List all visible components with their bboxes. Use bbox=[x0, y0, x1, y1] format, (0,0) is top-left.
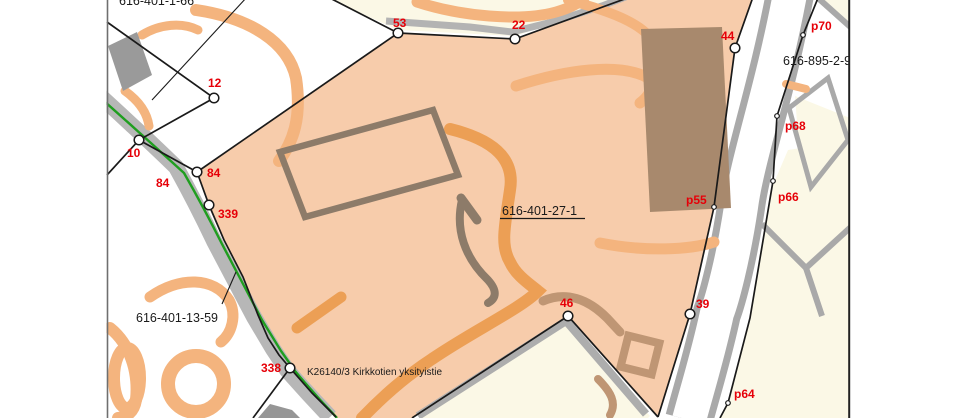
boundary-point-marker-small[interactable] bbox=[771, 179, 776, 184]
road-name-label: K26140/3 Kirkkotien yksityistie bbox=[307, 367, 443, 378]
point-label: p66 bbox=[778, 190, 799, 204]
point-label: p64 bbox=[734, 387, 755, 401]
cadastral-map-canvas: 53 22 44 12 10 84 84 339 338 46 39 p70 p… bbox=[0, 0, 960, 418]
point-label: 84 bbox=[207, 166, 221, 180]
contour-line bbox=[142, 25, 198, 35]
boundary-point-marker-small[interactable] bbox=[726, 401, 731, 406]
point-label: 10 bbox=[127, 146, 141, 160]
boundary-point-marker[interactable] bbox=[209, 93, 219, 103]
contour-ring bbox=[168, 356, 224, 412]
boundary-point-marker[interactable] bbox=[192, 167, 202, 177]
boundary-point-marker[interactable] bbox=[685, 309, 695, 319]
contour-line bbox=[786, 84, 806, 89]
boundary-point-marker-small[interactable] bbox=[801, 33, 806, 38]
building-gray bbox=[108, 32, 152, 91]
road-patch-bottom bbox=[258, 404, 300, 418]
boundary-point-marker[interactable] bbox=[204, 200, 214, 210]
boundary-point-marker[interactable] bbox=[134, 135, 144, 145]
boundary-point-marker[interactable] bbox=[730, 43, 740, 53]
parcel-id-label-west: 616-401-13-59 bbox=[136, 311, 218, 325]
boundary-point-marker[interactable] bbox=[563, 311, 573, 321]
point-label: p55 bbox=[686, 193, 707, 207]
point-label: 84 bbox=[156, 176, 170, 190]
boundary-point-marker-small[interactable] bbox=[775, 114, 780, 119]
point-label: 39 bbox=[696, 297, 710, 311]
point-label: 22 bbox=[512, 18, 526, 32]
parcel-id-label-main: 616-401-27-1 bbox=[502, 204, 577, 218]
cadastral-map-viewport[interactable]: 53 22 44 12 10 84 84 339 338 46 39 p70 p… bbox=[0, 0, 960, 418]
point-label: p70 bbox=[811, 19, 832, 33]
point-label: 12 bbox=[208, 76, 222, 90]
parcel-id-label-north: 616-401-1-66 bbox=[119, 0, 194, 8]
boundary-point-marker[interactable] bbox=[510, 34, 520, 44]
point-label: 46 bbox=[560, 296, 574, 310]
boundary-point-marker[interactable] bbox=[285, 363, 295, 373]
point-label: p68 bbox=[785, 119, 806, 133]
point-label: 338 bbox=[261, 361, 281, 375]
point-label: 44 bbox=[721, 29, 735, 43]
parcel-id-label-north-east: 616-895-2-9 bbox=[783, 54, 851, 68]
point-label: 339 bbox=[218, 207, 238, 221]
point-label: 53 bbox=[393, 16, 407, 30]
boundary-point-marker-small[interactable] bbox=[712, 205, 717, 210]
